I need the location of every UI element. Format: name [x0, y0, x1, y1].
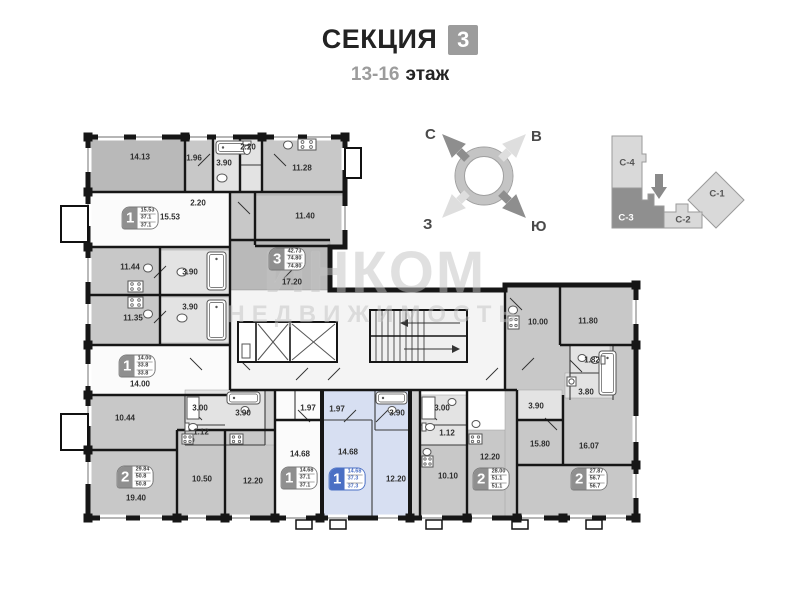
apartment-area-value: 28.00 — [491, 468, 507, 476]
apartment-badge[interactable]: 342.7374.8074.80 — [269, 248, 306, 271]
apartment-rooms-count: 1 — [120, 356, 135, 377]
apartment-area-value: 37.3 — [347, 476, 363, 484]
apartment-badge[interactable]: 114.0033.833.8 — [119, 355, 156, 378]
apartment-rooms-count: 2 — [474, 469, 489, 490]
apartment-area-value: 37.1 — [140, 222, 156, 229]
apartment-areas: 29.8450.850.8 — [133, 467, 153, 488]
apartment-badge[interactable]: 228.0051.151.1 — [473, 468, 510, 491]
apartment-area-value: 33.8 — [137, 363, 153, 371]
apartment-area-value: 50.8 — [135, 474, 151, 482]
apartment-area-value: 14.68 — [299, 467, 315, 475]
apartment-rooms-count: 3 — [270, 249, 285, 270]
apartment-rooms-count: 1 — [330, 469, 345, 490]
compass-rose: С В З Ю — [405, 112, 563, 244]
elevator-shaft-icon — [238, 322, 337, 362]
apartment-area-value: 74.80 — [287, 263, 303, 270]
apartment-area-value: 37.3 — [347, 483, 363, 490]
minimap-label-s2[interactable]: С-2 — [675, 215, 690, 226]
apartment-rooms-count: 1 — [123, 208, 138, 229]
apartment-rooms-count: 2 — [118, 467, 133, 488]
apartment-area-value: 14.68 — [347, 468, 363, 476]
apartment-badge[interactable]: 114.6837.337.3 — [329, 468, 366, 491]
floors-range: 13-16 — [351, 64, 400, 85]
apartment-badge[interactable]: 229.8450.850.8 — [117, 466, 154, 489]
floors-suffix: этаж — [406, 64, 450, 85]
section-minimap: С-4 С-3 С-2 С-1 — [598, 128, 748, 235]
compass-north-label: С — [425, 126, 436, 143]
apartment-area-value: 15.53 — [140, 207, 156, 215]
apartment-area-value: 14.00 — [137, 355, 153, 363]
floors-subtitle: 13-16этаж — [351, 64, 449, 86]
apartment-areas: 27.8756.756.7 — [587, 469, 607, 490]
section-number-badge: 3 — [448, 25, 478, 55]
apartment-area-value: 74.80 — [287, 256, 303, 264]
section-title: СЕКЦИЯ 3 — [322, 24, 479, 55]
apartment-area-value: 37.1 — [140, 215, 156, 223]
bottom-vent-boxes — [296, 520, 602, 529]
apartment-area-value: 37.1 — [299, 475, 315, 483]
apartment-badge[interactable]: 114.6837.137.1 — [281, 467, 318, 490]
apartment-area-value: 50.8 — [135, 481, 151, 488]
apartment-area-value: 42.73 — [287, 248, 303, 256]
apartment-areas: 28.0051.151.1 — [489, 469, 509, 490]
minimap-label-s3[interactable]: С-3 — [618, 213, 633, 224]
minimap-label-s4[interactable]: С-4 — [619, 158, 634, 169]
apartment-area-value: 37.1 — [299, 482, 315, 489]
minimap-label-s1[interactable]: С-1 — [709, 189, 724, 200]
compass-east-label: В — [531, 128, 542, 145]
compass-south-label: Ю — [531, 218, 546, 235]
apartment-area-value: 33.8 — [137, 370, 153, 377]
section-label: СЕКЦИЯ — [322, 24, 438, 55]
apartment-badge[interactable]: 115.5337.137.1 — [122, 207, 159, 230]
apartment-area-value: 51.1 — [491, 483, 507, 490]
apartment-area-value: 51.1 — [491, 476, 507, 484]
apartment-rooms-count: 1 — [282, 468, 297, 489]
apartment-area-value: 27.87 — [589, 468, 605, 476]
apartment-areas: 15.5337.137.1 — [138, 208, 158, 229]
apartment-area-value: 29.84 — [135, 466, 151, 474]
apartment-areas: 14.0033.833.8 — [135, 356, 155, 377]
apartment-badge[interactable]: 227.8756.756.7 — [571, 468, 608, 491]
staircase-icon — [370, 310, 467, 362]
apartment-areas: 14.6837.137.1 — [297, 468, 317, 489]
compass-west-label: З — [423, 216, 432, 233]
apartment-area-value: 56.7 — [589, 476, 605, 484]
floorplan-page: СЕКЦИЯ 3 13-16этаж — [0, 0, 800, 591]
apartment-rooms-count: 2 — [572, 469, 587, 490]
apartment-areas: 14.6837.337.3 — [345, 469, 365, 490]
apartment-areas: 42.7374.8074.80 — [285, 249, 305, 270]
header: СЕКЦИЯ 3 13-16этаж — [0, 24, 800, 86]
apartment-area-value: 56.7 — [589, 483, 605, 490]
